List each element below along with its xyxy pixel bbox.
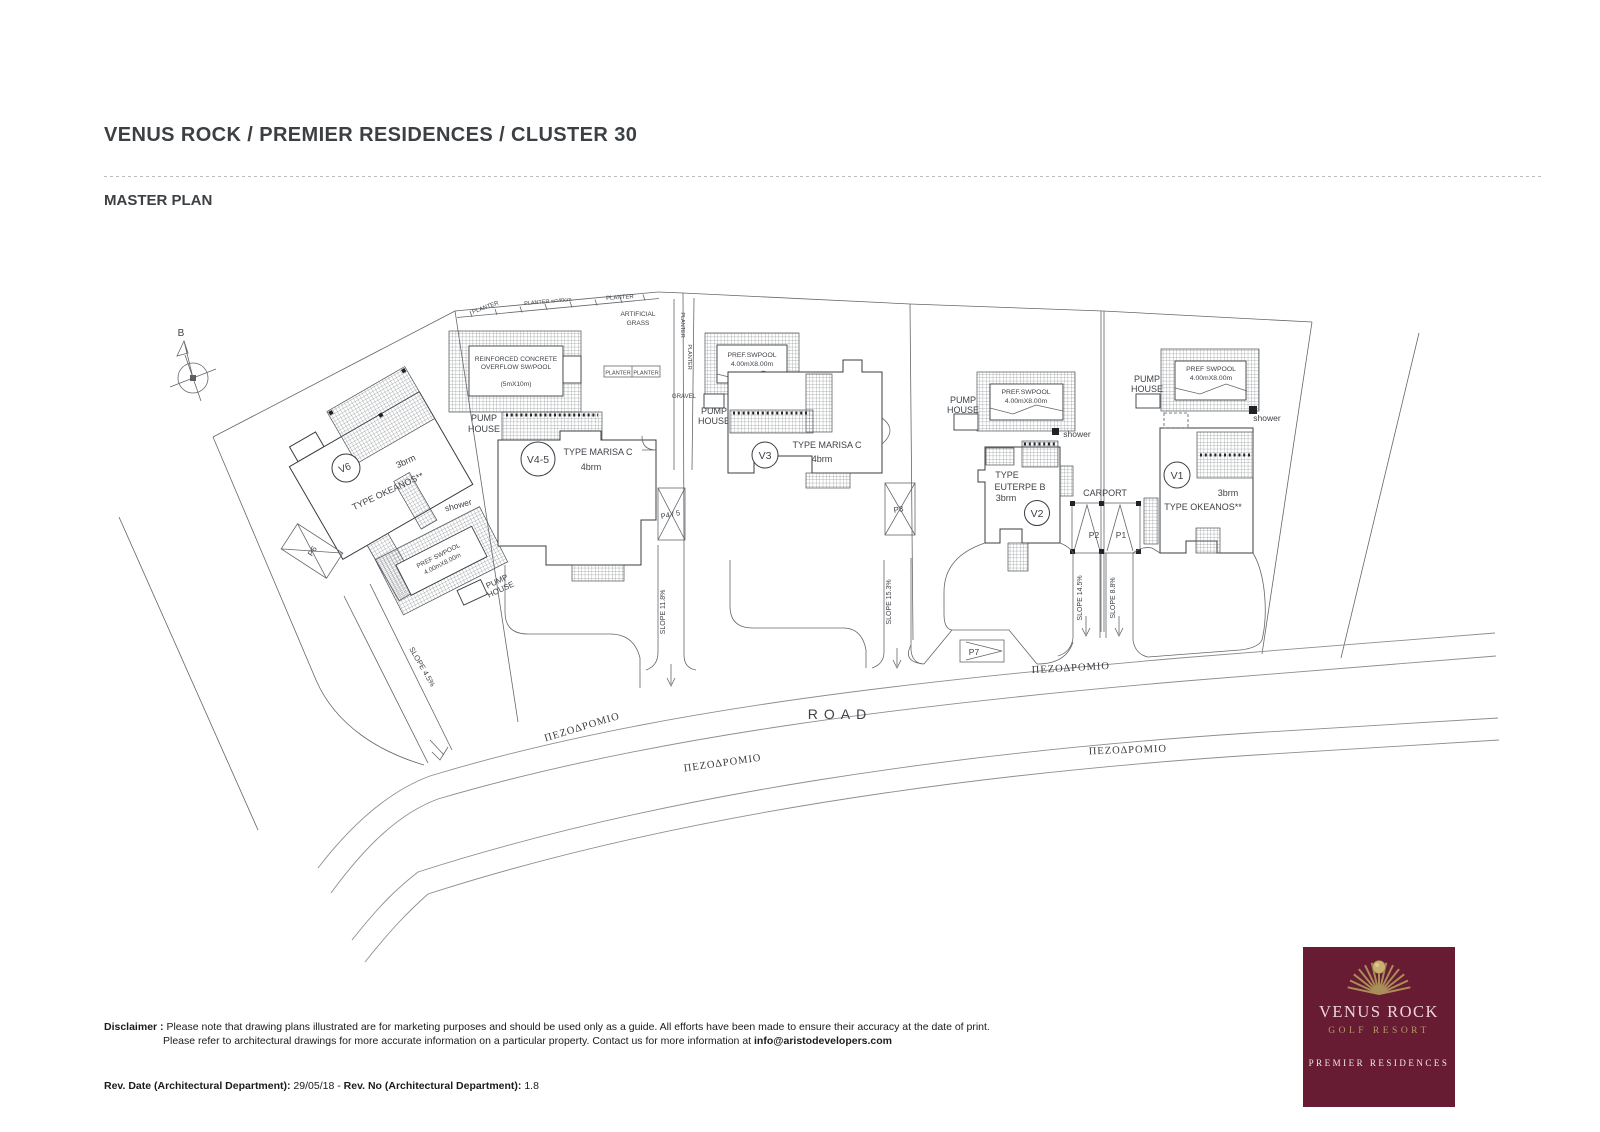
v2-shower-label: shower <box>1063 429 1091 439</box>
sidewalk-label-2: ΠΕΖΟΔΡΟΜΙΟ <box>683 753 762 775</box>
v2-house-label: HOUSE <box>947 405 979 415</box>
v45-pump-label: PUMP <box>471 413 497 423</box>
v45-type: TYPE MARISA C <box>563 447 633 457</box>
v3-id: V3 <box>759 450 772 462</box>
v45-parking-label: P4 / 5 <box>660 508 681 521</box>
p7-label: P7 <box>969 647 980 657</box>
v1-brm: 3brm <box>1218 488 1239 498</box>
carport-label: CARPORT <box>1083 488 1127 498</box>
disclaimer-email: info@aristodevelopers.com <box>754 1035 892 1047</box>
v1-house-label: HOUSE <box>1131 384 1163 394</box>
v3-type: TYPE MARISA C <box>792 440 862 450</box>
north-arrow: B <box>170 328 216 401</box>
v45-artificial-grass-2: GRASS <box>627 320 650 327</box>
v3-pool-line1: PREF.SWPOOL <box>727 352 776 359</box>
v2-pool-line1: PREF.SWPOOL <box>1001 389 1050 396</box>
sidewalk-label-4: ΠΕΖΟΔΡΟΜΙΟ <box>1089 744 1168 758</box>
logo-tagline: PREMIER RESIDENCES <box>1309 1058 1450 1068</box>
v1-pool-line2: 4.00mX8.00m <box>1190 375 1233 382</box>
v2-brm: 3brm <box>996 493 1017 503</box>
v45-planter-vert-2: PLANTER <box>686 344 692 369</box>
v45-parking: P4 / 5 <box>658 488 685 540</box>
v45-planter-vert-1: PLANTER <box>679 312 685 337</box>
logo-name: VENUS ROCK <box>1319 1002 1439 1022</box>
road-label: ROAD <box>808 706 872 722</box>
rev-date-value: 29/05/18 - <box>291 1080 344 1092</box>
v45-pool-line2: OVERFLOW SW/POOL <box>481 364 552 371</box>
v2-pool-line2: 4.00mX8.00m <box>1005 398 1048 405</box>
v45-brm: 4brm <box>581 462 602 472</box>
v1-pump-label: PUMP <box>1134 374 1160 384</box>
v2-id: V2 <box>1031 508 1044 520</box>
v2-parking-p1-label: P1 <box>1116 530 1127 540</box>
v45-gravel-label: GRAVEL <box>672 394 697 400</box>
v1-shower-label: shower <box>1253 413 1281 423</box>
p7-parking: P7 <box>924 630 1037 664</box>
v3-brm: 4brm <box>812 454 833 464</box>
v45-pool-size: (5mX10m) <box>501 381 532 388</box>
v45-slope-label: SLOPE 11.8% <box>660 590 667 635</box>
v2-pump-label: PUMP <box>950 395 976 405</box>
north-label: B <box>178 328 185 339</box>
disclaimer-line1: Please note that drawing plans illustrat… <box>166 1021 989 1033</box>
v45-planter-box-2: PLANTER <box>633 371 658 377</box>
v3-pool-line2: 4.00mX8.00m <box>731 361 774 368</box>
disclaimer-line2: Please refer to architectural drawings f… <box>163 1035 754 1047</box>
venus-rock-logo: VENUS ROCK GOLF RESORT PREMIER RESIDENCE… <box>1303 947 1455 1107</box>
v3-pump-label: PUMP <box>701 406 727 416</box>
lot-v3: PREF.SWPOOL 4.00mX8.00m PUMP HOUSE V3 TY… <box>698 333 922 668</box>
v3-parking: P3 <box>885 483 915 535</box>
v45-artificial-grass-1: ARTIFICIAL <box>621 311 656 318</box>
v45-planter-1: PLANTER <box>472 300 501 315</box>
sidewalk-label-1: ΠΕΖΟΔΡΟΜΙΟ <box>543 711 621 744</box>
rev-no-label: Rev. No (Architectural Department): <box>344 1080 522 1092</box>
v45-pool-line1: REINFORCED CONCRETE <box>475 356 558 363</box>
v2-parking-p2-label: P2 <box>1089 530 1100 540</box>
rev-no-value: 1.8 <box>521 1080 539 1092</box>
disclaimer-label: Disclaimer : <box>104 1021 164 1033</box>
v1-pool-line1: PREF SWPOOL <box>1186 366 1236 373</box>
v1-slope-label: SLOPE 8.8% <box>1110 577 1117 618</box>
master-plan-page: VENUS ROCK / PREMIER RESIDENCES / CLUSTE… <box>0 0 1600 1132</box>
v2-carport: CARPORT P2 P1 <box>1070 488 1141 554</box>
v45-planter-box-1: PLANTER <box>605 371 630 377</box>
v45-planter-3: PLANTER <box>606 294 635 302</box>
v6-slope-label: SLOPE 4.5% <box>407 645 437 688</box>
golf-fan-icon <box>1329 960 1429 1000</box>
revision-line: Rev. Date (Architectural Department): 29… <box>104 1080 539 1092</box>
v1-type: TYPE OKEANOS** <box>1164 502 1242 512</box>
v2-type-line1: TYPE <box>995 470 1019 480</box>
lot-v45: PLANTER PLANTER w=40cm PLANTER ARTIFICIA… <box>449 294 697 688</box>
v3-parking-label: P3 <box>893 504 905 515</box>
road-network: ΠΕΖΟΔΡΟΜΙΟ ΠΕΖΟΔΡΟΜΙΟ ΠΕΖΟΔΡΟΜΙΟ ΠΕΖΟΔΡΟ… <box>318 633 1499 962</box>
v2-type-line2: EUTERPE B <box>994 482 1045 492</box>
v45-house-label: HOUSE <box>468 424 500 434</box>
v3-slope-label: SLOPE 15.3% <box>886 579 893 624</box>
v3-house-label: HOUSE <box>698 416 730 426</box>
v6-parking-label: P6 <box>306 544 319 558</box>
v45-id: V4-5 <box>527 454 549 466</box>
v1-id: V1 <box>1171 470 1184 482</box>
sidewalk-label-3: ΠΕΖΟΔΡΟΜΙΟ <box>1031 661 1110 676</box>
v2-slope-label: SLOPE 14.5% <box>1077 575 1084 620</box>
logo-resort: GOLF RESORT <box>1328 1026 1430 1036</box>
v45-planter-2: PLANTER w=40cm <box>524 297 572 307</box>
rev-date-label: Rev. Date (Architectural Department): <box>104 1080 291 1092</box>
